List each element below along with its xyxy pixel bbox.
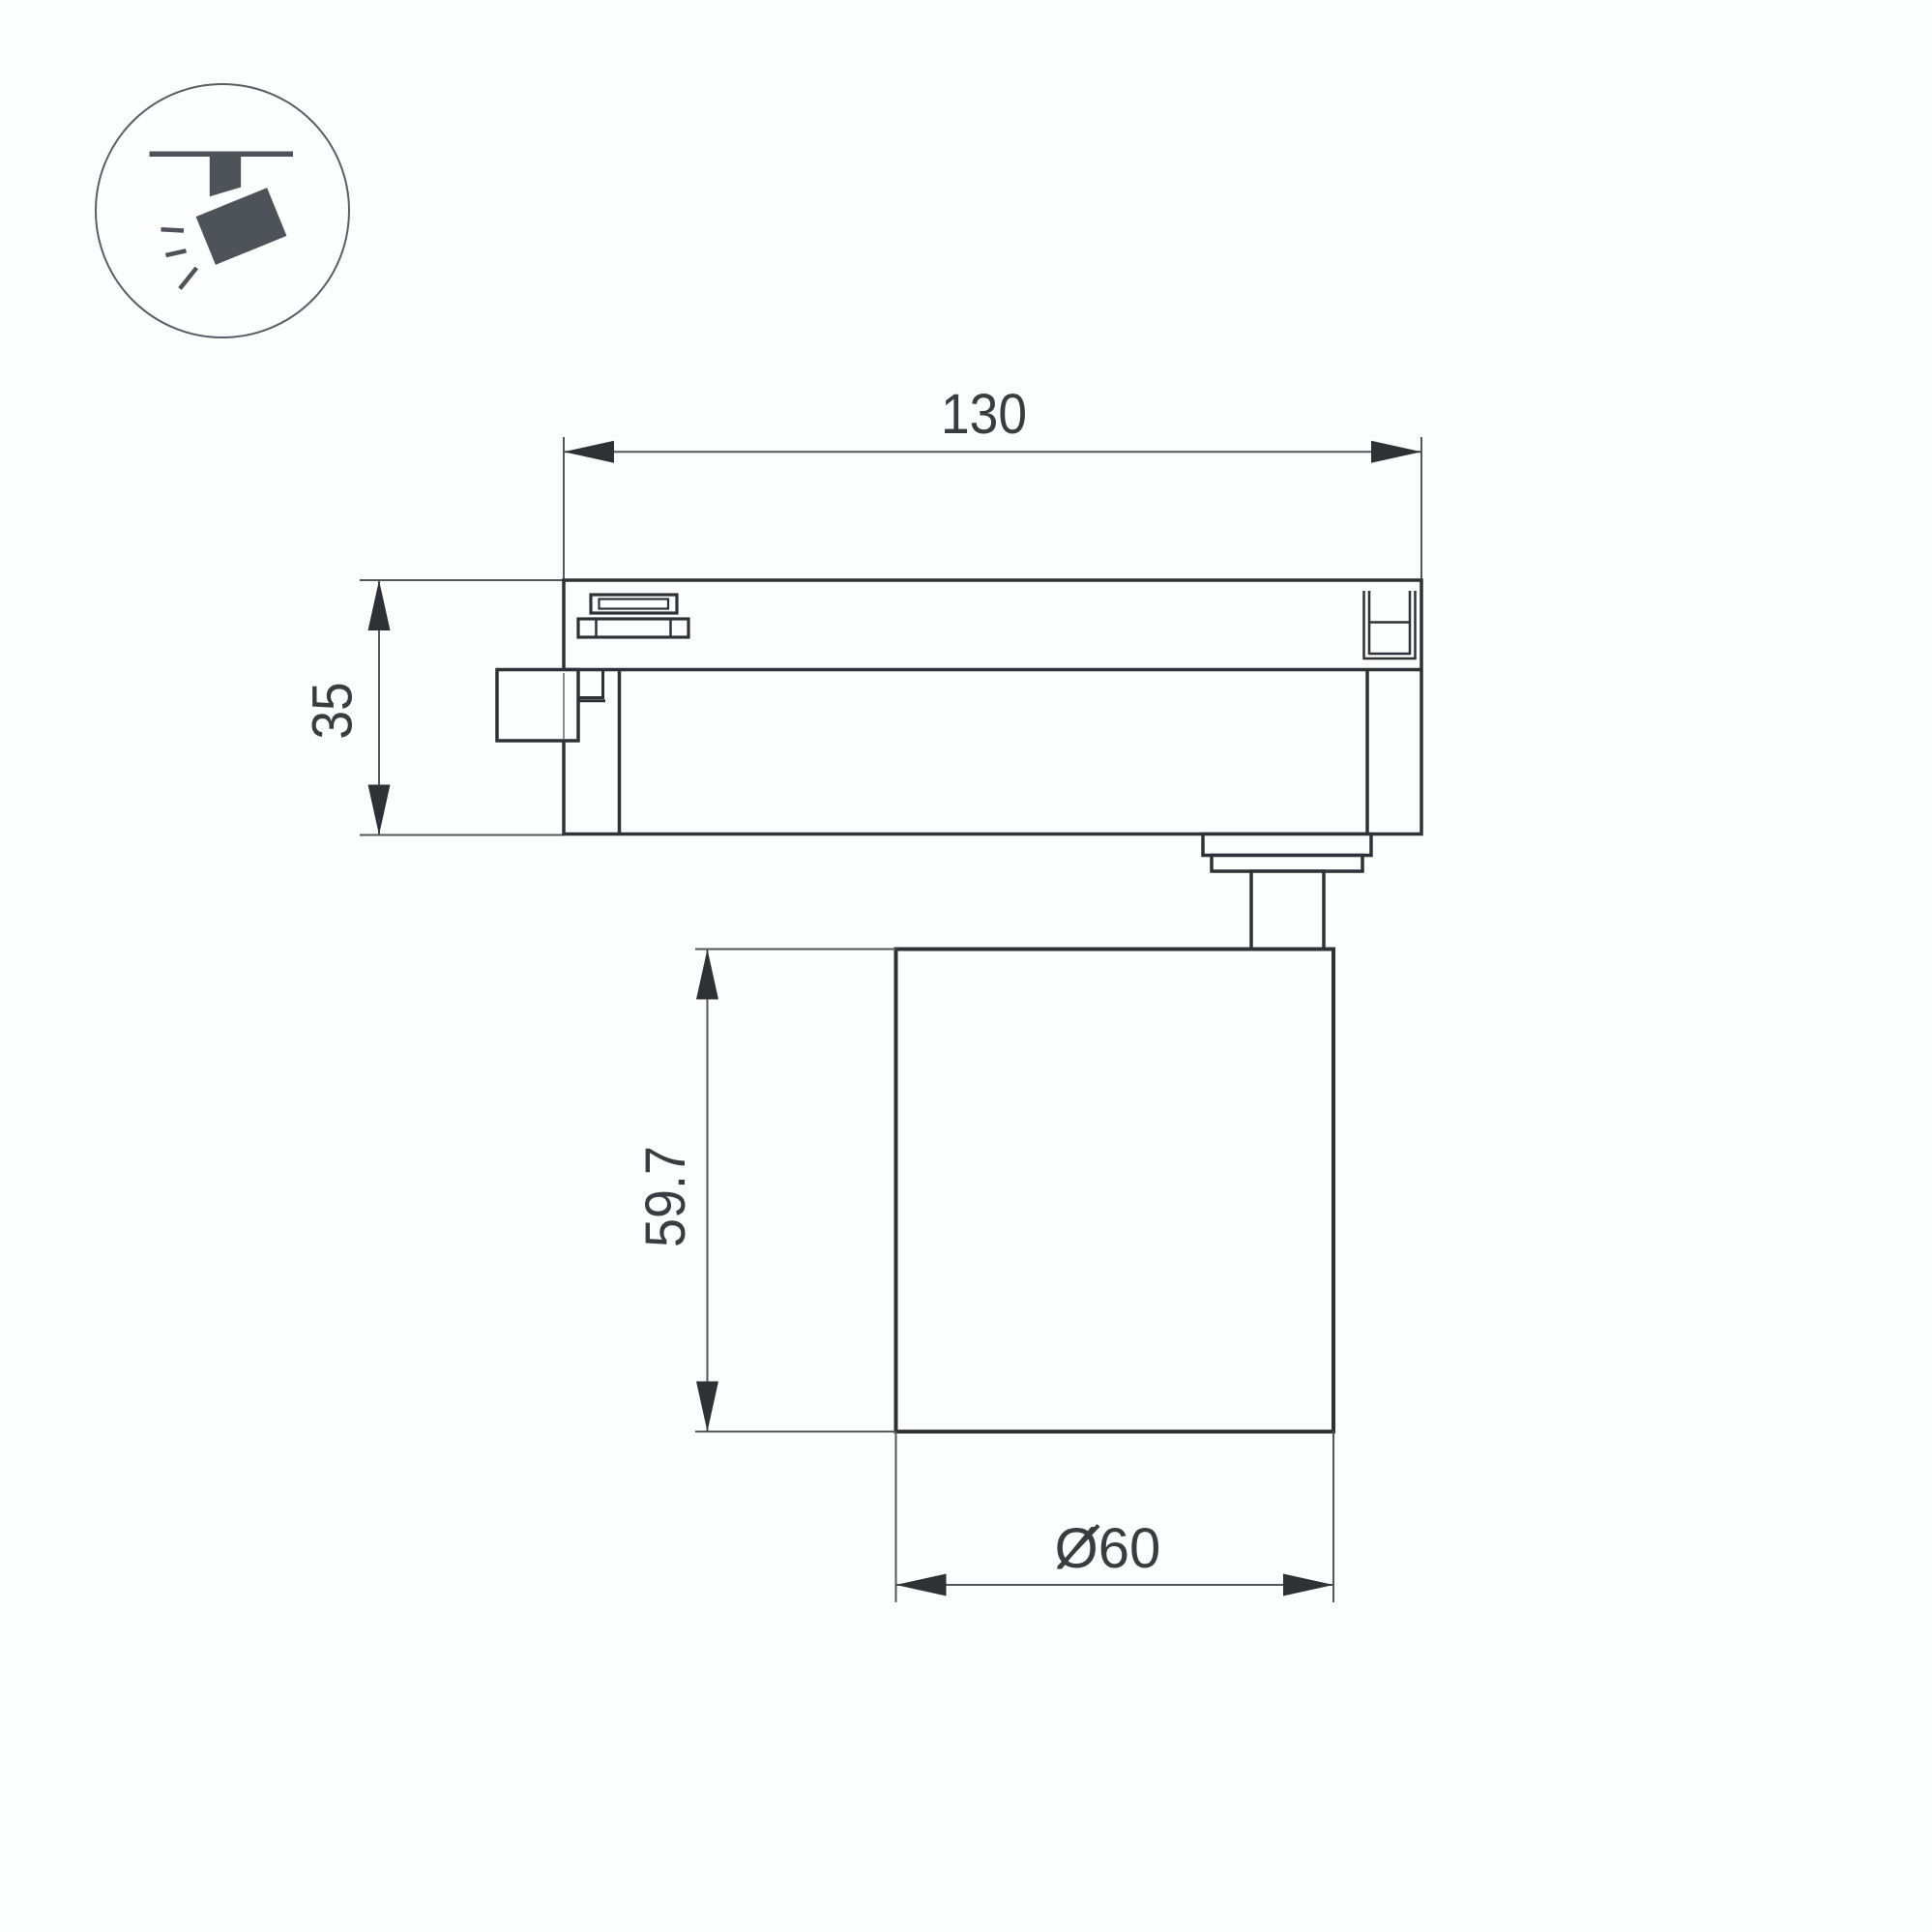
svg-text:59.7: 59.7 [633, 1146, 696, 1247]
svg-text:35: 35 [302, 682, 365, 739]
svg-text:Ø60: Ø60 [1055, 1517, 1161, 1580]
svg-text:130: 130 [941, 383, 1027, 446]
